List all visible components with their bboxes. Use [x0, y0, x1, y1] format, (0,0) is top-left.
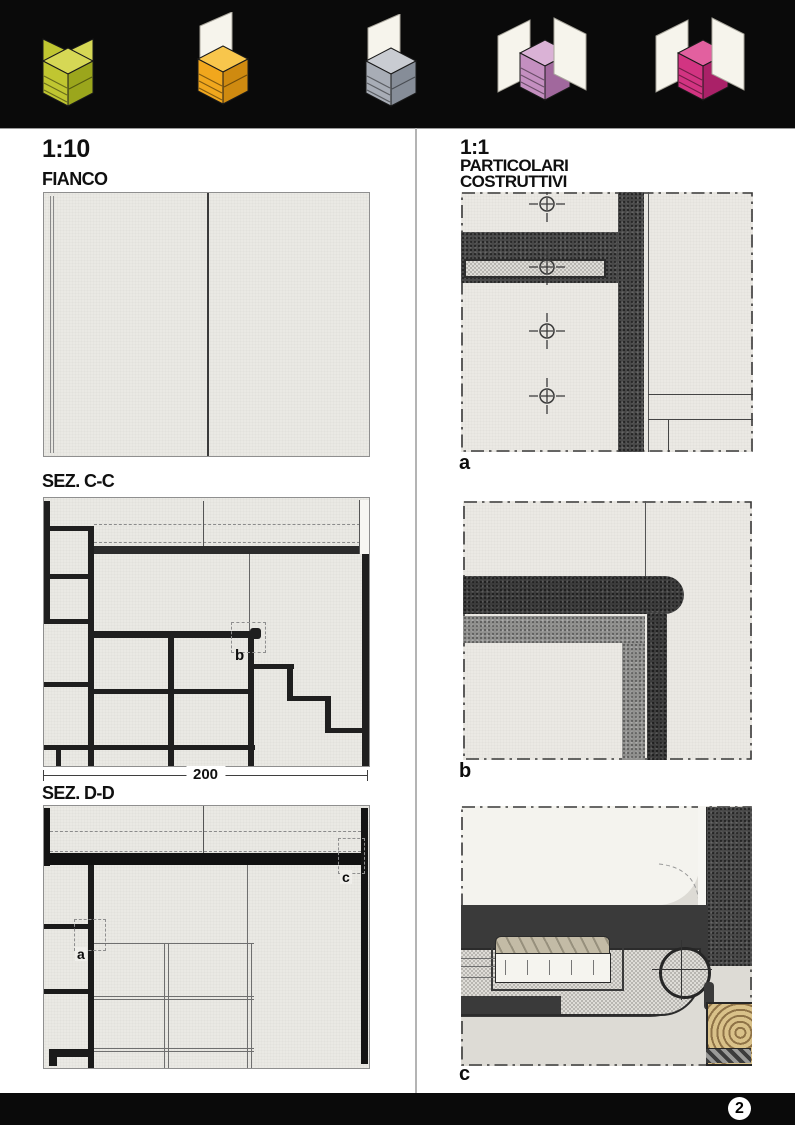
fianco-drawing	[43, 192, 370, 457]
page-number-badge: 2	[728, 1097, 751, 1120]
right-title-line2: COSTRUTTIVI	[460, 173, 567, 190]
detail-c-drawing	[461, 806, 752, 1066]
screw-axis-icon	[529, 378, 565, 414]
screw-axis-icon	[529, 249, 565, 285]
screw-axis-icon	[529, 192, 565, 222]
detail-a-drawing	[461, 192, 753, 452]
footer-band: 2	[0, 1093, 795, 1125]
detail-c-label: c	[459, 1064, 470, 1084]
iso-figure-stage-1	[15, 14, 115, 119]
scale-label-left: 1:10	[42, 137, 90, 162]
wall-panel-section	[706, 807, 752, 966]
left-wall	[44, 501, 50, 624]
leg-section	[647, 613, 667, 760]
leg-substrate	[622, 643, 645, 760]
screw-axis-icon	[529, 313, 565, 349]
panel-joint-line	[207, 193, 209, 456]
right-wall	[362, 554, 369, 766]
sez-cc-title: SEZ. C-C	[42, 472, 114, 490]
dimension-200: 200	[43, 766, 368, 782]
dimension-200-value: 200	[186, 766, 225, 783]
sez-dd-title: SEZ. D-D	[42, 784, 114, 802]
callout-b-label: b	[235, 648, 244, 663]
column-divider	[415, 128, 417, 1093]
iso-figure-stage-5	[650, 10, 750, 115]
detail-b-label: b	[459, 761, 471, 781]
ladder-upright	[88, 865, 94, 1068]
iso-figure-stage-4	[492, 10, 592, 115]
slat-board-section	[495, 953, 611, 983]
worktop-bullnose-section	[463, 576, 684, 614]
header-band	[0, 0, 795, 129]
iso-figure-stage-3	[338, 14, 438, 119]
sez-dd-drawing: c a	[43, 805, 370, 1069]
bed-platform-bar	[94, 546, 360, 554]
ladder-upright	[88, 526, 94, 766]
iso-figure-stage-2	[170, 12, 270, 117]
detail-b-drawing	[463, 501, 752, 760]
fianco-title: FIANCO	[42, 170, 107, 188]
callout-c-label: c	[340, 870, 352, 884]
detail-a-label: a	[459, 453, 470, 473]
bed-platform-bar	[50, 853, 361, 865]
scale-label-right: 1:1	[460, 137, 489, 158]
wall-panel-section	[618, 192, 644, 452]
worktop-substrate	[463, 616, 645, 643]
callout-a-label: a	[75, 947, 87, 961]
sez-cc-drawing: b	[43, 497, 370, 767]
catalogue-page: 1:10 FIANCO SEZ. C-C b	[0, 0, 795, 1125]
